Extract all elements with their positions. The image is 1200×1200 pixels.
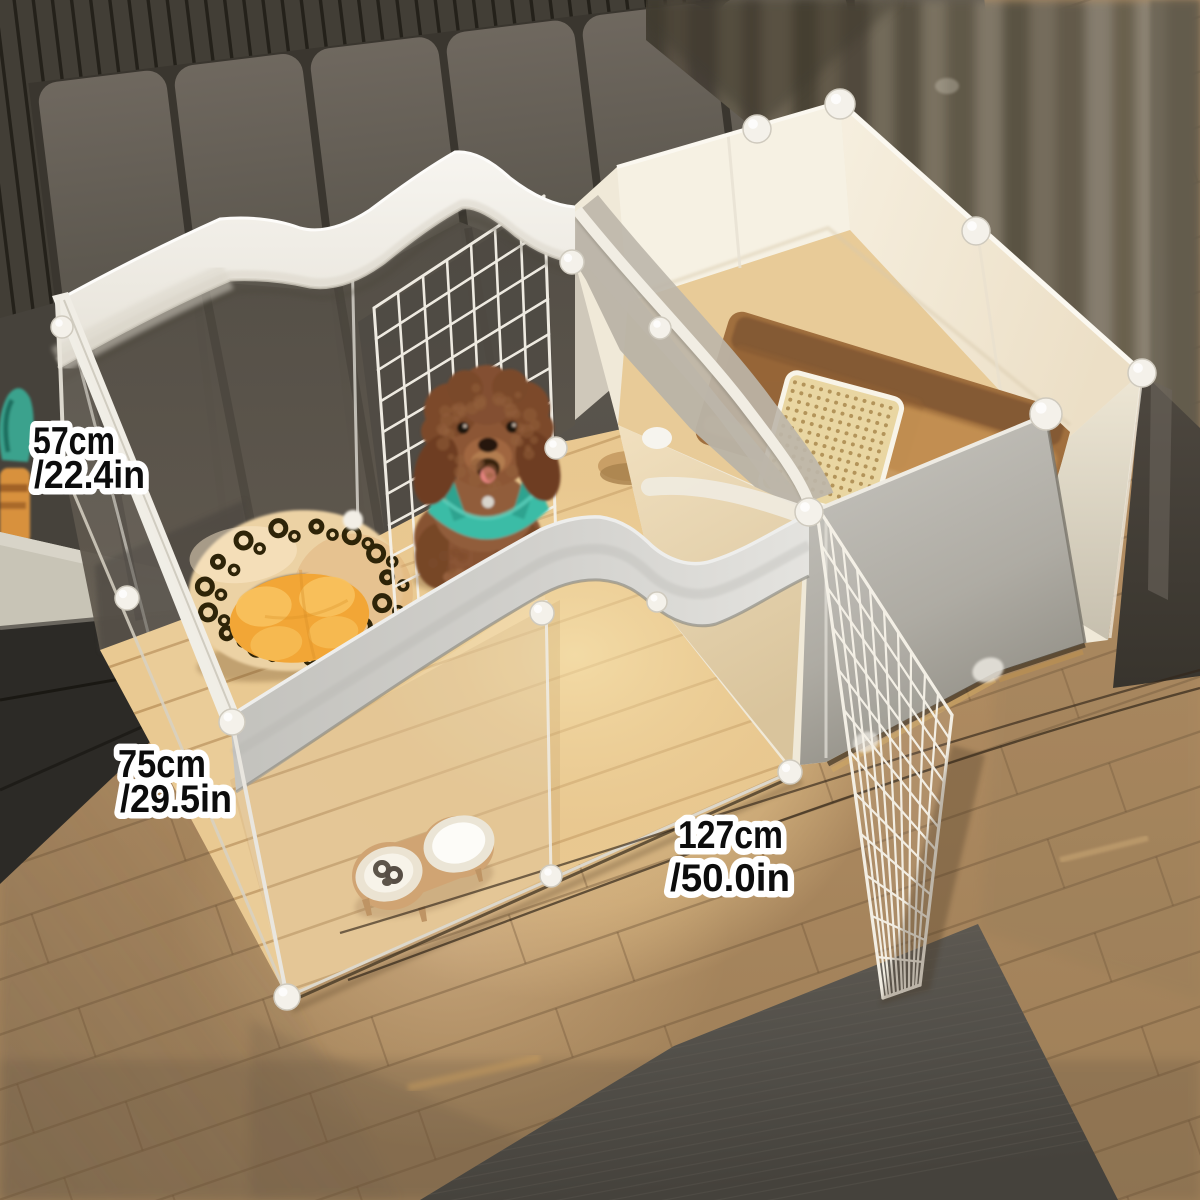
svg-text:/22.4in: /22.4in — [34, 454, 145, 497]
svg-text:/29.5in: /29.5in — [120, 778, 232, 821]
svg-text:127cm: 127cm — [678, 814, 783, 857]
svg-text:/50.0in: /50.0in — [670, 857, 790, 900]
